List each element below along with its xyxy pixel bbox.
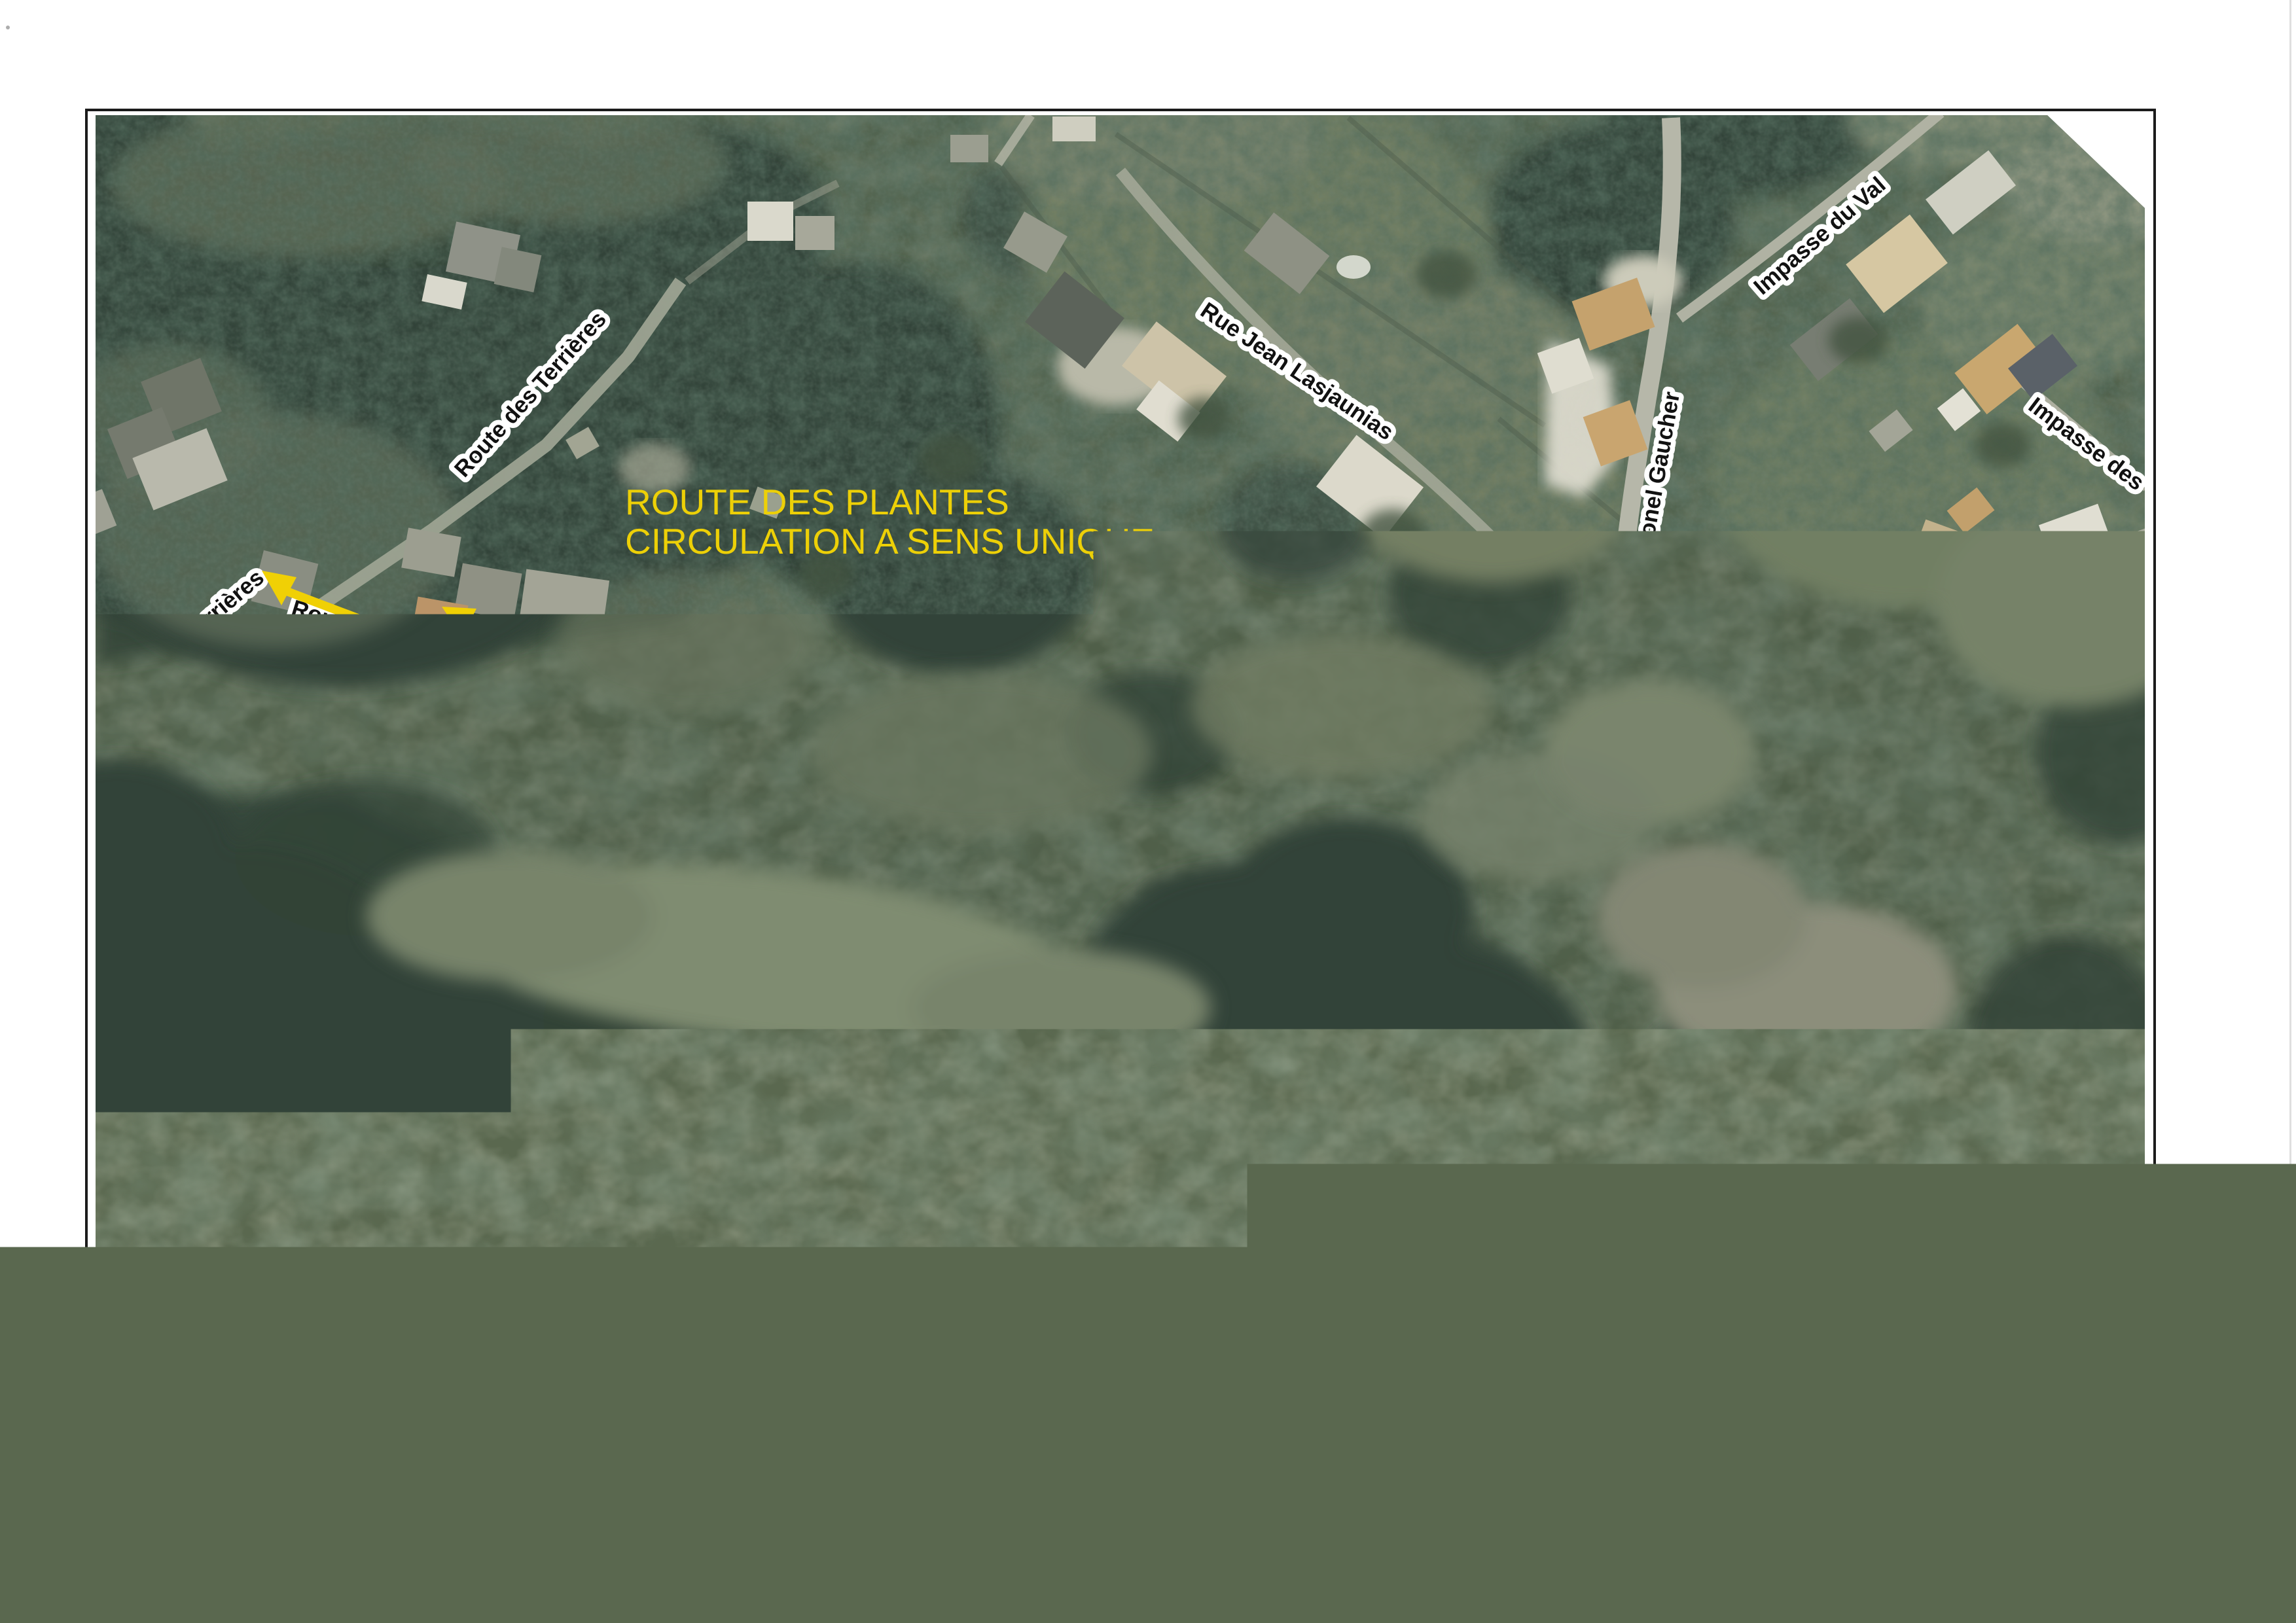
svg-text:sens de circulation: sens de circulation bbox=[726, 611, 1024, 651]
svg-text:Plan 1: Plan 1 bbox=[1117, 1380, 1194, 1409]
svg-text:B: B bbox=[224, 1436, 278, 1527]
svg-text:SO: SO bbox=[2026, 1498, 2039, 1508]
svg-text:O: O bbox=[2006, 1454, 2013, 1464]
svg-text:Edité le 16/04/2026 - Echelle: Edité le 16/04/2026 - Echelle : 1/2000 -… bbox=[1520, 1508, 1967, 1529]
svg-text:CIRCULATION A SENS UNIQUE: CIRCULATION A SENS UNIQUE bbox=[625, 521, 1155, 562]
svg-text:N: N bbox=[2072, 1384, 2079, 1395]
svg-text:A: A bbox=[130, 1421, 188, 1512]
svg-text:E: E bbox=[2138, 1454, 2144, 1464]
svg-text:S: S bbox=[2072, 1522, 2078, 1533]
svg-text:Socle de données de référence: Socle de données de référence - Lien ISI… bbox=[105, 1536, 867, 1557]
svg-text:NE: NE bbox=[2113, 1412, 2125, 1422]
svg-text:ROUTE DES PLANTES: ROUTE DES PLANTES bbox=[625, 482, 1009, 522]
svg-text:SE: SE bbox=[2115, 1498, 2127, 1508]
svg-text:NO: NO bbox=[2026, 1410, 2039, 1420]
